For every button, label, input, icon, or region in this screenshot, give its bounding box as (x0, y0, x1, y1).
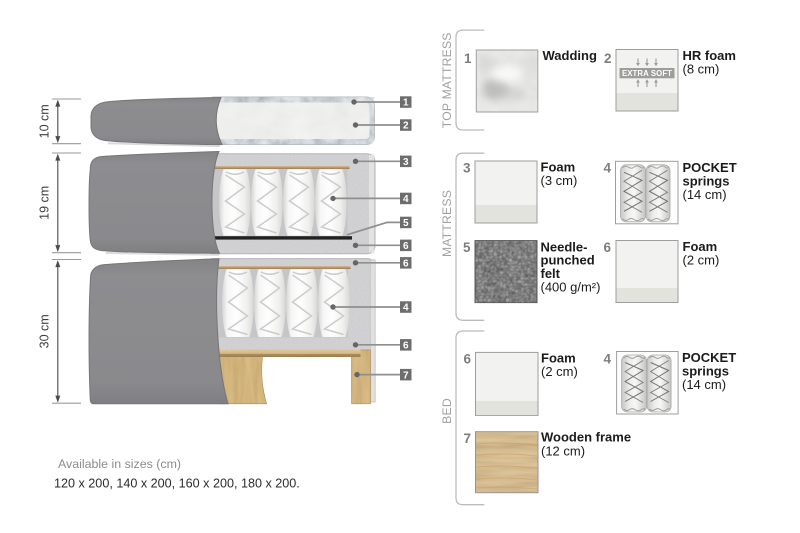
svg-text:1: 1 (403, 98, 409, 109)
svg-text:19 cm: 19 cm (37, 186, 51, 220)
svg-text:Foam: Foam (541, 350, 576, 365)
svg-text:(2 cm): (2 cm) (541, 364, 578, 379)
svg-text:6: 6 (403, 241, 409, 252)
svg-text:5: 5 (463, 240, 471, 255)
svg-text:Foam: Foam (541, 159, 576, 174)
svg-text:2: 2 (604, 51, 612, 66)
svg-text:10 cm: 10 cm (37, 104, 51, 138)
svg-text:BED: BED (440, 398, 454, 424)
svg-text:HR foam: HR foam (683, 48, 736, 63)
svg-text:4: 4 (603, 352, 611, 367)
svg-text:4: 4 (403, 194, 409, 205)
svg-text:Foam: Foam (683, 239, 718, 254)
svg-text:6: 6 (463, 352, 471, 367)
svg-text:3: 3 (403, 157, 409, 168)
svg-text:7: 7 (463, 431, 471, 446)
svg-text:3: 3 (463, 161, 471, 176)
svg-text:EXTRA SOFT: EXTRA SOFT (622, 69, 672, 78)
svg-text:Wooden frame: Wooden frame (541, 430, 631, 445)
svg-text:MATTRESS: MATTRESS (440, 190, 454, 257)
svg-text:(12 cm): (12 cm) (541, 443, 585, 458)
svg-text:(2 cm): (2 cm) (683, 253, 720, 268)
svg-text:(14 cm): (14 cm) (682, 377, 726, 392)
svg-text:5: 5 (403, 218, 409, 229)
svg-text:(14 cm): (14 cm) (683, 187, 727, 202)
svg-text:6: 6 (403, 259, 409, 270)
svg-text:Wadding: Wadding (543, 48, 597, 63)
svg-text:(3 cm): (3 cm) (541, 173, 578, 188)
svg-text:6: 6 (403, 341, 409, 352)
svg-text:6: 6 (603, 240, 611, 255)
svg-text:TOP MATTRESS: TOP MATTRESS (440, 32, 454, 128)
svg-text:(400 g/m²): (400 g/m²) (541, 279, 601, 294)
svg-text:4: 4 (603, 161, 611, 176)
svg-text:(8 cm): (8 cm) (683, 62, 720, 77)
svg-text:1: 1 (464, 51, 472, 66)
svg-text:4: 4 (403, 303, 409, 314)
svg-text:7: 7 (403, 370, 409, 381)
svg-text:120 x 200, 140 x 200, 160 x 20: 120 x 200, 140 x 200, 160 x 200, 180 x 2… (54, 477, 300, 491)
svg-text:30 cm: 30 cm (37, 314, 51, 348)
svg-text:2: 2 (403, 121, 409, 132)
svg-text:Available in sizes (cm): Available in sizes (cm) (58, 457, 181, 471)
